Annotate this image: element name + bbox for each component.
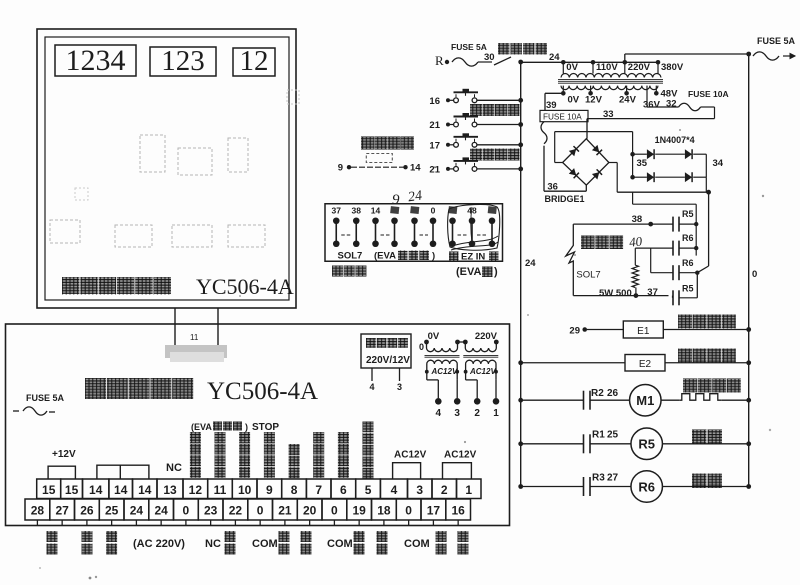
svg-text:15: 15 xyxy=(65,483,79,497)
svg-text:14: 14 xyxy=(371,206,381,216)
svg-text:14: 14 xyxy=(114,483,128,497)
svg-text:36V: 36V xyxy=(643,100,661,111)
svg-text:25: 25 xyxy=(607,430,619,441)
svg-text:13: 13 xyxy=(163,483,177,497)
svg-text:2: 2 xyxy=(474,408,480,419)
svg-text:37: 37 xyxy=(332,206,342,216)
svg-text:1N4007*4: 1N4007*4 xyxy=(655,135,695,145)
svg-text:YC506-4A: YC506-4A xyxy=(196,274,294,299)
svg-text:17: 17 xyxy=(429,140,440,151)
svg-text:0: 0 xyxy=(431,206,436,216)
svg-text:(EVA: (EVA xyxy=(374,251,396,262)
svg-text:12V: 12V xyxy=(585,95,603,106)
svg-text:BRIDGE1: BRIDGE1 xyxy=(545,194,585,204)
svg-text:24: 24 xyxy=(154,504,168,518)
svg-text:21: 21 xyxy=(278,504,292,518)
svg-text:12: 12 xyxy=(189,483,203,497)
svg-text:24: 24 xyxy=(549,52,560,63)
svg-text:8: 8 xyxy=(291,483,298,497)
svg-text:9: 9 xyxy=(392,192,400,208)
svg-text:R5: R5 xyxy=(682,284,694,294)
svg-text:23: 23 xyxy=(204,504,218,518)
svg-text:0: 0 xyxy=(257,504,264,518)
svg-text:FUSE 10A: FUSE 10A xyxy=(543,113,582,122)
svg-text:24: 24 xyxy=(130,504,144,518)
svg-text:35: 35 xyxy=(637,158,648,169)
svg-text:16: 16 xyxy=(451,504,465,518)
svg-text:(EVA: (EVA xyxy=(456,266,482,278)
svg-text:FUSE 5A: FUSE 5A xyxy=(451,42,487,52)
svg-text:0V: 0V xyxy=(428,331,440,342)
svg-text:27: 27 xyxy=(55,504,69,518)
svg-text:1: 1 xyxy=(465,483,472,497)
svg-text:0: 0 xyxy=(419,342,424,352)
svg-text:26: 26 xyxy=(80,504,94,518)
svg-text:R1: R1 xyxy=(592,430,605,441)
svg-text:4: 4 xyxy=(369,382,374,392)
svg-text:11: 11 xyxy=(190,333,199,342)
svg-text:AC12V: AC12V xyxy=(394,450,427,461)
svg-text:38: 38 xyxy=(352,206,362,216)
svg-text:0: 0 xyxy=(183,504,190,518)
svg-text:EZ IN: EZ IN xyxy=(461,252,485,263)
svg-text:0V: 0V xyxy=(566,62,578,73)
svg-text:(EVA: (EVA xyxy=(191,422,212,432)
svg-text:R6: R6 xyxy=(682,233,694,243)
svg-text:10: 10 xyxy=(238,483,252,497)
svg-text:26: 26 xyxy=(607,388,619,399)
svg-text:): ) xyxy=(245,422,248,432)
svg-text:3: 3 xyxy=(454,408,460,419)
svg-text:COM: COM xyxy=(252,538,278,550)
svg-text:R6: R6 xyxy=(638,479,655,494)
svg-text:FUSE 5A: FUSE 5A xyxy=(26,393,65,403)
svg-text:38: 38 xyxy=(632,214,643,225)
svg-text:4: 4 xyxy=(436,408,442,419)
svg-text:SOL7: SOL7 xyxy=(338,251,363,262)
svg-text:5W 500: 5W 500 xyxy=(599,288,632,299)
svg-text:22: 22 xyxy=(229,504,243,518)
svg-text:SOL7: SOL7 xyxy=(576,270,600,281)
svg-text:R2: R2 xyxy=(591,388,604,399)
svg-text:20: 20 xyxy=(303,504,317,518)
svg-text:48: 48 xyxy=(467,206,477,216)
svg-text:25: 25 xyxy=(105,504,119,518)
svg-text:15: 15 xyxy=(42,483,56,497)
svg-text:220V/12V: 220V/12V xyxy=(366,355,410,366)
svg-text:36: 36 xyxy=(547,182,558,193)
svg-text:32: 32 xyxy=(666,99,677,110)
svg-text:): ) xyxy=(494,266,498,278)
svg-text:E1: E1 xyxy=(637,326,650,337)
svg-text:7: 7 xyxy=(315,483,322,497)
svg-text:COM: COM xyxy=(327,538,353,550)
svg-text:0: 0 xyxy=(752,269,757,280)
svg-text:R6: R6 xyxy=(682,258,694,268)
svg-text:5: 5 xyxy=(365,483,372,497)
svg-text:14: 14 xyxy=(89,483,103,497)
svg-text:E2: E2 xyxy=(639,359,652,370)
svg-text:220V: 220V xyxy=(628,62,651,73)
svg-text:9: 9 xyxy=(338,163,343,174)
svg-text:R: R xyxy=(435,53,444,68)
svg-text:14: 14 xyxy=(410,163,421,174)
svg-text:1234: 1234 xyxy=(66,44,126,77)
svg-text:21: 21 xyxy=(429,120,440,131)
svg-text:0V: 0V xyxy=(568,95,580,106)
svg-text:STOP: STOP xyxy=(252,422,279,433)
svg-text:): ) xyxy=(432,251,435,262)
svg-text:123: 123 xyxy=(161,45,205,77)
svg-text:37: 37 xyxy=(647,287,658,298)
svg-text:12: 12 xyxy=(240,45,269,77)
svg-text:17: 17 xyxy=(427,504,441,518)
svg-text:AC12V: AC12V xyxy=(444,450,477,461)
svg-text:11: 11 xyxy=(214,483,227,497)
svg-text:0: 0 xyxy=(331,504,338,518)
svg-text:NC: NC xyxy=(166,462,182,474)
svg-text:R5: R5 xyxy=(682,209,694,219)
svg-text:+12V: +12V xyxy=(52,449,76,460)
svg-text:AC12V: AC12V xyxy=(431,367,458,376)
svg-text:39: 39 xyxy=(546,100,557,111)
svg-text:27: 27 xyxy=(607,473,619,484)
svg-text:FUSE 10A: FUSE 10A xyxy=(688,89,729,99)
svg-text:16: 16 xyxy=(429,96,440,107)
svg-text:21: 21 xyxy=(429,164,440,175)
svg-text:2: 2 xyxy=(441,483,448,497)
svg-text:18: 18 xyxy=(377,504,391,518)
svg-text:30: 30 xyxy=(484,52,495,63)
svg-text:24: 24 xyxy=(407,189,423,206)
svg-text:9: 9 xyxy=(266,483,273,497)
svg-text:COM: COM xyxy=(404,538,430,550)
svg-text:4: 4 xyxy=(391,483,398,497)
svg-text:AC12V: AC12V xyxy=(469,367,496,376)
svg-text:6: 6 xyxy=(340,483,347,497)
svg-text:1: 1 xyxy=(493,408,499,419)
svg-text:M1: M1 xyxy=(636,393,654,408)
svg-text:YC506-4A: YC506-4A xyxy=(207,378,318,405)
svg-text:FUSE 5A: FUSE 5A xyxy=(757,36,796,46)
svg-text:24: 24 xyxy=(525,258,536,269)
svg-text:3: 3 xyxy=(397,382,402,392)
svg-text:0: 0 xyxy=(405,504,412,518)
svg-text:24V: 24V xyxy=(619,95,637,106)
svg-text:380V: 380V xyxy=(661,62,684,73)
svg-text:R5: R5 xyxy=(638,437,655,452)
svg-text:40: 40 xyxy=(628,233,643,249)
svg-text:33: 33 xyxy=(603,109,614,120)
svg-text:R3: R3 xyxy=(592,473,605,484)
svg-text:29: 29 xyxy=(569,326,580,337)
svg-text:NC: NC xyxy=(205,538,221,550)
svg-text:220V: 220V xyxy=(475,331,498,342)
svg-text:3: 3 xyxy=(416,483,423,497)
svg-text:28: 28 xyxy=(31,504,45,518)
svg-text:19: 19 xyxy=(352,504,366,518)
svg-text:34: 34 xyxy=(713,158,724,169)
svg-text:14: 14 xyxy=(138,483,152,497)
svg-text:110V: 110V xyxy=(596,62,618,73)
svg-text:(AC 220V): (AC 220V) xyxy=(133,538,185,550)
